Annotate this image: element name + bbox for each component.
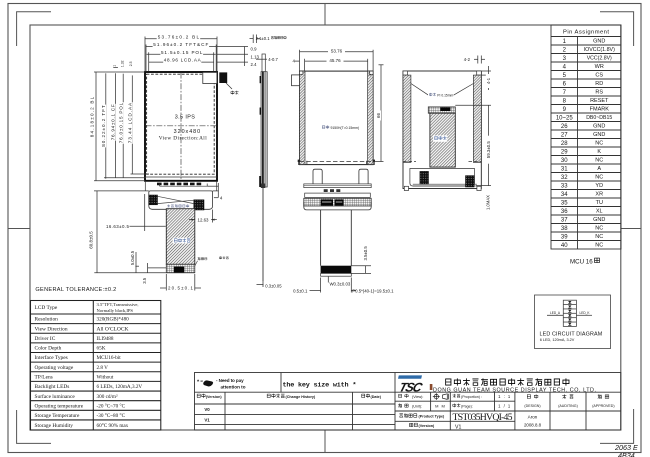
svg-text:DB0~DB15: DB0~DB15 bbox=[586, 115, 612, 121]
svg-text:TU: TU bbox=[596, 200, 603, 206]
svg-text:TP/Lens: TP/Lens bbox=[35, 375, 53, 381]
svg-text:320(RGB)*480: 320(RGB)*480 bbox=[97, 316, 130, 323]
svg-text:2.1±0.1: 2.1±0.1 bbox=[256, 36, 271, 41]
svg-text:Operating voltage: Operating voltage bbox=[35, 365, 74, 371]
svg-text:48.96 LCD.AA: 48.96 LCD.AA bbox=[164, 58, 202, 63]
svg-text:5.0±0.5: 5.0±0.5 bbox=[130, 250, 135, 265]
svg-text:V0: V0 bbox=[204, 407, 210, 412]
svg-text:Backlight LEDs: Backlight LEDs bbox=[35, 384, 70, 390]
svg-text:LED_A: LED_A bbox=[550, 311, 561, 315]
svg-text:33: 33 bbox=[561, 183, 568, 189]
svg-text:65K: 65K bbox=[97, 346, 106, 352]
svg-text:LED_K: LED_K bbox=[579, 311, 590, 315]
svg-text:34: 34 bbox=[561, 192, 568, 198]
svg-text:1: 1 bbox=[368, 74, 372, 76]
svg-text:NC: NC bbox=[595, 158, 603, 164]
svg-text:DONG GUAN TEAM SOURCE DISPLAY: DONG GUAN TEAM SOURCE DISPLAY TECH. CO, … bbox=[433, 387, 596, 393]
svg-text:0.3±0.05: 0.3±0.05 bbox=[265, 283, 282, 288]
svg-text:1: 1 bbox=[112, 65, 116, 67]
svg-text:LCD Type: LCD Type bbox=[35, 305, 58, 311]
svg-text:53.76: 53.76 bbox=[331, 49, 343, 54]
svg-text:GND: GND bbox=[593, 39, 605, 45]
svg-text:NC: NC bbox=[595, 226, 603, 232]
svg-text:(Version): (Version) bbox=[419, 424, 436, 428]
svg-text:66: 66 bbox=[376, 113, 381, 119]
svg-text:(Product Type): (Product Type) bbox=[419, 415, 446, 419]
svg-text:60.8±0.5: 60.8±0.5 bbox=[88, 231, 93, 249]
svg-text:16.63±0.5: 16.63±0.5 bbox=[106, 224, 130, 229]
svg-text:26: 26 bbox=[561, 124, 568, 130]
svg-text:M M: M M bbox=[435, 404, 446, 409]
svg-text:RD: RD bbox=[595, 81, 603, 87]
svg-text:GND: GND bbox=[593, 124, 605, 130]
svg-text:2008.8.8: 2008.8.8 bbox=[524, 423, 542, 428]
svg-text:XL: XL bbox=[596, 209, 603, 215]
svg-text:20.5±0.1: 20.5±0.1 bbox=[168, 286, 194, 291]
svg-text:1.0MAX: 1.0MAX bbox=[485, 195, 490, 210]
svg-text:Aron: Aron bbox=[528, 414, 538, 419]
svg-text:IOVCC(1.8V): IOVCC(1.8V) bbox=[584, 47, 615, 53]
svg-text:37: 37 bbox=[561, 217, 568, 223]
svg-text:2.5: 2.5 bbox=[129, 61, 133, 66]
svg-text:45.76: 45.76 bbox=[329, 58, 341, 63]
svg-text:GND: GND bbox=[593, 217, 605, 223]
svg-text:Surface luminance: Surface luminance bbox=[35, 393, 76, 400]
svg-text:CS: CS bbox=[595, 73, 603, 79]
svg-text:V1: V1 bbox=[455, 424, 461, 430]
svg-text:60°C 90% max: 60°C 90% max bbox=[97, 422, 129, 429]
svg-text:NC: NC bbox=[595, 234, 603, 240]
svg-text:(Date): (Date) bbox=[371, 395, 382, 399]
svg-text:(AUDITING): (AUDITING) bbox=[558, 404, 578, 408]
svg-text:NC: NC bbox=[595, 175, 603, 181]
svg-text:4B34: 4B34 bbox=[618, 451, 635, 457]
svg-text:View Direction:All: View Direction:All bbox=[159, 135, 208, 141]
svg-text:Color Depth: Color Depth bbox=[35, 346, 62, 352]
svg-text:36: 36 bbox=[561, 209, 568, 215]
svg-text:38: 38 bbox=[561, 226, 568, 232]
svg-text:320x480: 320x480 bbox=[174, 129, 201, 135]
svg-text:LED CIRCUIT DIAGRAM: LED CIRCUIT DIAGRAM bbox=[540, 331, 603, 337]
svg-text:(Unit):: (Unit): bbox=[412, 405, 422, 409]
svg-text:(DESIGN): (DESIGN) bbox=[524, 404, 540, 408]
svg-text:29: 29 bbox=[561, 149, 568, 155]
svg-text:PI 0.15mm: PI 0.15mm bbox=[437, 94, 453, 98]
svg-text:6 LED, 120mA, 3.2V: 6 LED, 120mA, 3.2V bbox=[540, 338, 575, 342]
svg-text:4-2: 4-2 bbox=[464, 57, 471, 62]
svg-text:3.5±0.5: 3.5±0.5 bbox=[363, 246, 368, 261]
svg-text:Operating temperature: Operating temperature bbox=[35, 403, 84, 409]
svg-text:73.44 LCD.AA: 73.44 LCD.AA bbox=[127, 102, 132, 143]
svg-text:1 / 1: 1 / 1 bbox=[498, 404, 511, 409]
svg-text:V1: V1 bbox=[204, 417, 210, 422]
svg-text:6 LEDs, 120mA,3.2V: 6 LEDs, 120mA,3.2V bbox=[97, 384, 143, 390]
svg-text:-20 °C~70 °C: -20 °C~70 °C bbox=[97, 402, 126, 409]
svg-text:All O'CLOCK: All O'CLOCK bbox=[97, 326, 129, 332]
svg-text:XR: XR bbox=[595, 192, 603, 198]
svg-text:3.5: 3.5 bbox=[142, 277, 147, 284]
svg-text:A: A bbox=[597, 166, 601, 172]
svg-text:NC: NC bbox=[595, 141, 603, 147]
svg-text:84.18±0.2 BL: 84.18±0.2 BL bbox=[90, 96, 95, 137]
svg-text:10~25: 10~25 bbox=[556, 115, 574, 121]
svg-text:(APPROVED): (APPROVED) bbox=[592, 404, 614, 408]
svg-text:51.5±0.15 POL: 51.5±0.15 POL bbox=[161, 50, 203, 55]
svg-text:4-1: 4-1 bbox=[486, 77, 491, 84]
svg-text:W0.3±0.03: W0.3±0.03 bbox=[330, 281, 351, 286]
svg-text:NC: NC bbox=[595, 243, 603, 249]
svg-text:28: 28 bbox=[561, 141, 568, 147]
svg-text:27: 27 bbox=[561, 132, 568, 138]
svg-text:1.32: 1.32 bbox=[120, 60, 124, 67]
svg-text:9150H(T=0.15mm): 9150H(T=0.15mm) bbox=[331, 126, 360, 130]
svg-text:4-0.7: 4-0.7 bbox=[268, 57, 278, 62]
svg-text:12.63: 12.63 bbox=[198, 217, 210, 222]
svg-text:30: 30 bbox=[561, 158, 568, 164]
svg-text:YD: YD bbox=[595, 183, 603, 189]
svg-text:(Proportion) :: (Proportion) : bbox=[461, 395, 482, 399]
svg-text:0.9: 0.9 bbox=[251, 47, 258, 52]
svg-text:Driver IC: Driver IC bbox=[35, 336, 56, 342]
svg-text:View Direction: View Direction bbox=[35, 326, 68, 332]
svg-text:MCU16-bit: MCU16-bit bbox=[97, 355, 122, 361]
svg-text:32: 32 bbox=[561, 175, 568, 181]
svg-text:RESET: RESET bbox=[590, 98, 609, 104]
svg-text:ILI9488: ILI9488 bbox=[97, 336, 114, 342]
svg-text:Storage Temperature: Storage Temperature bbox=[35, 413, 80, 419]
svg-text:0.5±0.1: 0.5±0.1 bbox=[293, 288, 308, 293]
svg-text:VCC(2.8V): VCC(2.8V) bbox=[587, 56, 612, 62]
svg-text:51.96±0.2 TFT&CF: 51.96±0.2 TFT&CF bbox=[153, 42, 208, 47]
svg-text:GND: GND bbox=[593, 132, 605, 138]
svg-text:Interface Types: Interface Types bbox=[35, 354, 68, 361]
svg-text:300 cd/m²: 300 cd/m² bbox=[97, 394, 118, 400]
svg-text:FMARK: FMARK bbox=[590, 107, 610, 113]
svg-text:P0.5*(40-1)=19.5±0.1: P0.5*(40-1)=19.5±0.1 bbox=[352, 288, 394, 293]
svg-text:1.13: 1.13 bbox=[251, 54, 260, 59]
svg-text:- Need to pay: - Need to pay bbox=[216, 378, 244, 383]
svg-text:RS: RS bbox=[595, 90, 603, 96]
svg-text:(Version): (Version) bbox=[206, 395, 223, 399]
svg-text:WR: WR bbox=[595, 64, 604, 70]
svg-text:53.76±0.2 BL: 53.76±0.2 BL bbox=[158, 34, 200, 39]
svg-text:Pin Assignment: Pin Assignment bbox=[563, 29, 609, 35]
svg-text:76.94±0.1 CF: 76.94±0.1 CF bbox=[111, 104, 116, 140]
svg-text:31: 31 bbox=[561, 166, 568, 172]
svg-text:the key size with *: the key size with * bbox=[283, 382, 357, 390]
svg-text:3.5 IPS: 3.5 IPS bbox=[175, 114, 195, 120]
svg-text:attention to: attention to bbox=[221, 384, 246, 389]
svg-text:GENERAL TOLERANCE:±0.2: GENERAL TOLERANCE:±0.2 bbox=[35, 287, 116, 293]
svg-text:2.4: 2.4 bbox=[251, 62, 258, 67]
svg-text:2.8 V: 2.8 V bbox=[97, 365, 109, 371]
svg-text:76.0±0.15 POL: 76.0±0.15 POL bbox=[118, 102, 123, 143]
svg-text:35: 35 bbox=[561, 200, 568, 206]
svg-text:1 : 1: 1 : 1 bbox=[498, 394, 511, 399]
svg-text:39: 39 bbox=[561, 234, 568, 240]
svg-text:(View):: (View): bbox=[412, 395, 423, 399]
svg-text:Storage Humidity: Storage Humidity bbox=[35, 423, 74, 429]
svg-text:(Page):: (Page): bbox=[461, 405, 473, 409]
svg-text:80.22±0.2 TFT: 80.22±0.2 TFT bbox=[101, 105, 106, 147]
svg-text:TST035HVQI-45: TST035HVQI-45 bbox=[453, 412, 513, 423]
svg-text:MCU 16: MCU 16 bbox=[570, 259, 593, 266]
svg-text:Without: Without bbox=[97, 375, 114, 381]
svg-text:K: K bbox=[597, 149, 601, 155]
svg-text:(Change History): (Change History) bbox=[286, 395, 316, 399]
svg-text:-30 °C~80 °C: -30 °C~80 °C bbox=[97, 412, 126, 419]
svg-text:40: 40 bbox=[561, 243, 568, 249]
svg-text:Resolution: Resolution bbox=[35, 317, 59, 323]
svg-text:59.3±0.5: 59.3±0.5 bbox=[486, 141, 491, 159]
